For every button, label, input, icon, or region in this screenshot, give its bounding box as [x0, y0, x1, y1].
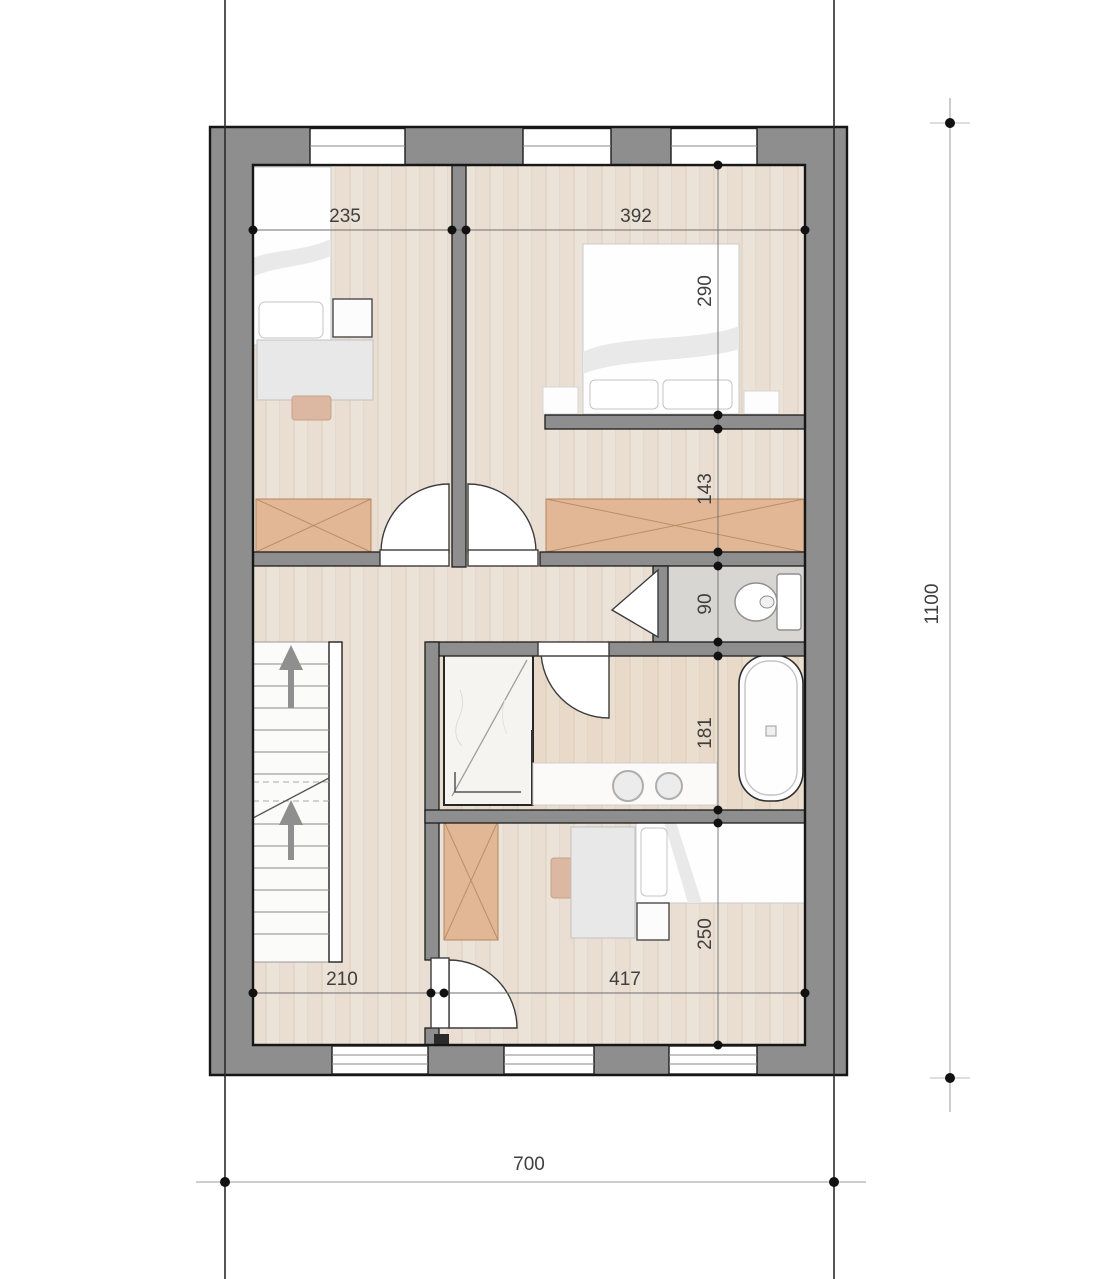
- nightstand-right: [744, 391, 779, 414]
- window: [669, 1046, 757, 1074]
- dim-closet-depth: 143: [695, 473, 716, 505]
- floor-plan-drawing: 235 392 290 143 90 181 250 210 417 1100: [0, 0, 1097, 1279]
- dim-overall-height: 1100: [922, 584, 943, 625]
- dim-hall-width: 210: [326, 969, 358, 990]
- wardrobe-icon: [546, 499, 804, 552]
- window: [504, 1046, 594, 1074]
- wardrobe-icon: [444, 821, 498, 940]
- nightstand: [333, 299, 372, 337]
- windows-top: [310, 129, 757, 165]
- bath-top-wall-right: [608, 642, 805, 656]
- shower-icon: [444, 653, 533, 805]
- bed-pillow-right: [663, 380, 732, 409]
- dim-bath-depth: 181: [695, 717, 716, 749]
- bed-pillow: [641, 828, 667, 896]
- nightstand: [637, 903, 669, 940]
- bath-top-wall-left: [428, 642, 540, 656]
- bed-pillow: [259, 302, 323, 338]
- hall-wall-right: [540, 552, 805, 566]
- desk: [571, 827, 635, 938]
- dim-room-tl-width: 235: [329, 206, 361, 227]
- wall-between-top-bedrooms: [452, 165, 466, 567]
- double-sink-icon: [533, 763, 717, 805]
- dim-room-b-depth: 250: [695, 918, 716, 950]
- bed-pillow-left: [590, 380, 658, 409]
- floor-plan-canvas: 235 392 290 143 90 181 250 210 417 1100: [0, 0, 1097, 1279]
- chair: [292, 396, 331, 420]
- window: [671, 129, 757, 165]
- dim-overall-width: 700: [513, 1154, 545, 1175]
- wardrobe-icon: [256, 499, 371, 552]
- desk: [257, 340, 373, 400]
- dim-room-b-width: 417: [609, 969, 641, 990]
- bathtub-icon: [739, 655, 803, 801]
- staircase: [253, 642, 342, 962]
- chair: [551, 858, 572, 898]
- nightstand-left: [543, 387, 578, 414]
- dimension-overall-height: 1100: [922, 98, 970, 1112]
- window: [310, 129, 405, 165]
- bath-bedroom-wall: [425, 810, 805, 823]
- door-threshold: [434, 1034, 449, 1044]
- dimension-overall-width: 700: [196, 1154, 866, 1187]
- window: [332, 1046, 428, 1074]
- bath-bedroom-left-wall: [425, 642, 439, 960]
- dim-room-tr-depth: 290: [695, 275, 716, 307]
- wall-under-double-bed: [545, 415, 805, 429]
- dim-wc-depth: 90: [695, 593, 716, 614]
- window: [523, 129, 611, 165]
- hall-wall-left: [253, 552, 380, 566]
- dim-room-tr-width: 392: [620, 206, 652, 227]
- stair-stringer: [329, 642, 342, 962]
- windows-bottom: [332, 1046, 757, 1074]
